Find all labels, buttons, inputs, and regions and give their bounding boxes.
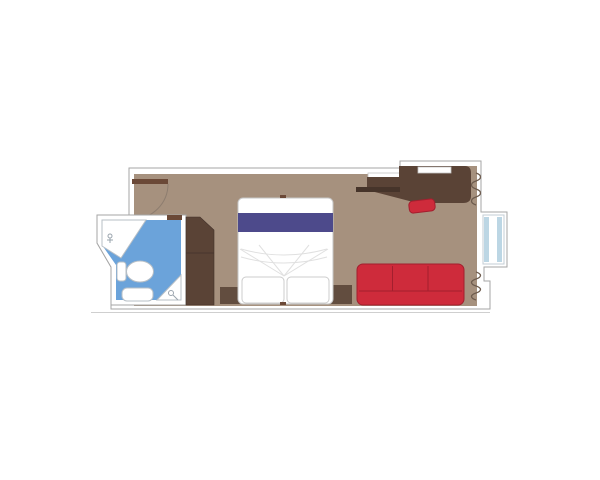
bed-center-mark-bottom [280,302,286,305]
mirror [418,167,451,173]
toilet-bowl [127,261,154,282]
stool [408,198,435,213]
balcony-window [483,215,504,264]
sofa-body [357,264,464,305]
bathroom-door [167,215,182,220]
window-glass-inner [484,217,489,262]
window-glass-outer [497,217,502,262]
double-bed [238,195,333,305]
wardrobe [186,217,214,305]
wardrobe-body [186,217,214,305]
shelf [356,187,400,192]
entrance-door [132,179,168,184]
pillow-right [287,277,329,303]
stool-seat [408,198,435,213]
floor-plan [0,0,600,480]
pillow-left [242,277,284,303]
bathroom [97,215,186,305]
toilet-tank [117,262,126,281]
bed-runner-band [238,213,333,232]
sofa [357,264,464,305]
bath-tray [122,288,153,301]
bed-center-mark-top [280,195,286,198]
floor-plan-canvas [0,0,600,480]
